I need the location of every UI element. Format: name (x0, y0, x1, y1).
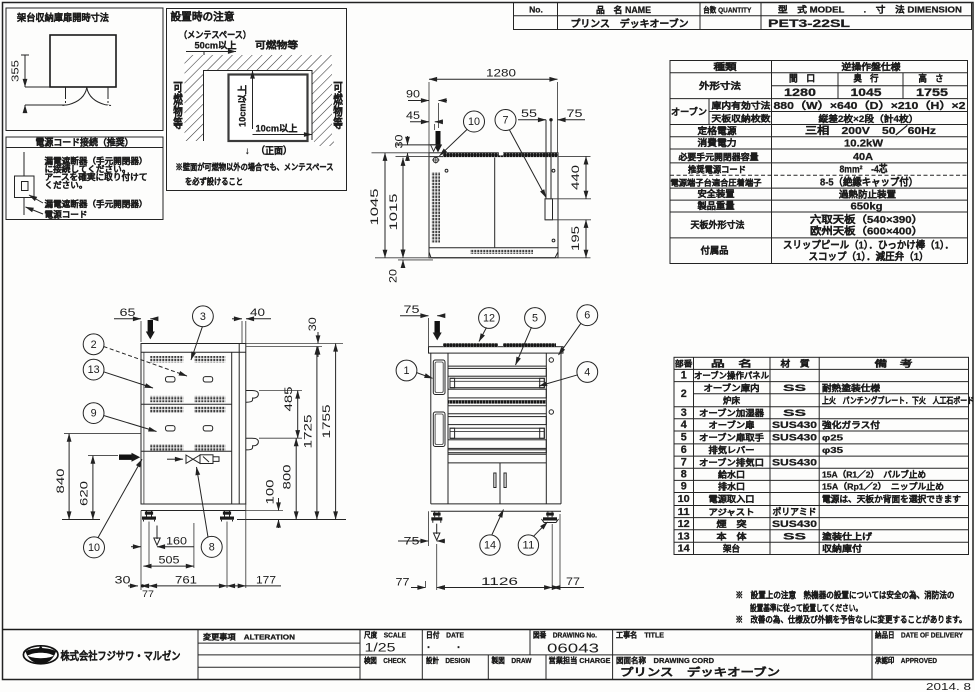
svg-text:77: 77 (566, 576, 580, 588)
svg-text:1280: 1280 (784, 87, 816, 99)
svg-text:8-5（絶縁キャップ付）: 8-5（絶縁キャップ付） (820, 175, 918, 188)
svg-text:75: 75 (567, 108, 583, 120)
svg-text:55: 55 (521, 108, 537, 120)
svg-text:三相 200V 50／60Hz: 三相 200V 50／60Hz (805, 124, 936, 137)
svg-text:2014. 8: 2014. 8 (926, 682, 972, 692)
svg-text:ください。: ください。 (45, 180, 88, 190)
svg-text:2: 2 (91, 339, 97, 351)
svg-text:15A（Rp1／2） ニップル止め: 15A（Rp1／2） ニップル止め (822, 482, 944, 492)
svg-text:炉床: 炉床 (723, 395, 741, 405)
svg-text:1015: 1015 (388, 194, 400, 231)
svg-text:ポリアミド: ポリアミド (773, 506, 817, 517)
svg-text:本 体: 本 体 (715, 531, 747, 541)
svg-text:9: 9 (681, 481, 687, 493)
svg-text:六取天板（540×390）: 六取天板（540×390） (810, 213, 923, 226)
svg-text:可燃物等: 可燃物等 (171, 81, 184, 130)
svg-text:8mm² -4芯: 8mm² -4芯 (840, 162, 888, 175)
svg-text:8: 8 (209, 541, 215, 553)
svg-text:12: 12 (483, 313, 495, 325)
svg-text:品 名: 品 名 (711, 358, 752, 369)
svg-text:納品日 DATE OF DELIVERY: 納品日 DATE OF DELIVERY (875, 631, 963, 640)
svg-text:840: 840 (55, 469, 67, 494)
svg-text:650kg: 650kg (851, 201, 883, 212)
svg-text:4: 4 (584, 367, 590, 379)
svg-text:プリンス デッキオーブン: プリンス デッキオーブン (620, 666, 780, 679)
svg-text:13: 13 (678, 531, 690, 542)
svg-text:10cm以上: 10cm以上 (256, 123, 298, 134)
svg-text:オーブン操作パネル: オーブン操作パネル (694, 371, 770, 381)
svg-text:75: 75 (404, 304, 420, 316)
svg-text:電源端子台適合圧着端子: 電源端子台適合圧着端子 (671, 177, 762, 187)
svg-text:架台収納庫扉開時寸法: 架台収納庫扉開時寸法 (16, 12, 109, 24)
svg-text:高 さ: 高 さ (919, 73, 944, 84)
svg-text:50cm以上: 50cm以上 (195, 40, 237, 51)
svg-text:5: 5 (681, 432, 687, 444)
svg-text:·: · (457, 642, 461, 654)
svg-text:オーブン扉取手: オーブン扉取手 (699, 433, 765, 443)
svg-text:外形寸法: 外形寸法 (698, 80, 741, 91)
svg-text:7: 7 (681, 456, 687, 468)
svg-text:8: 8 (681, 469, 687, 481)
svg-text:1: 1 (403, 365, 409, 377)
svg-text:505: 505 (159, 555, 180, 567)
svg-text:図番 DRAWING No.: 図番 DRAWING No. (533, 631, 597, 640)
svg-text:電源は、天板か背面を選択できます: 電源は、天板か背面を選択できます (822, 494, 961, 504)
svg-text:推奨電源コード: 推奨電源コード (688, 163, 746, 174)
svg-text:14: 14 (678, 544, 690, 555)
svg-text:·: · (427, 642, 431, 654)
svg-text:30: 30 (394, 135, 406, 149)
svg-text:880（W）×640（D）×210（H）×2: 880（W）×640（D）×210（H）×2 (774, 99, 967, 112)
svg-text:オーブン加湿器: オーブン加湿器 (699, 408, 765, 418)
svg-text:株式会社フジサワ・マルゼン: 株式会社フジサワ・マルゼン (61, 649, 181, 663)
svg-text:種類: 種類 (714, 61, 738, 72)
svg-text:（メンテスペース）: （メンテスペース） (179, 30, 251, 40)
svg-text:電源取入口: 電源取入口 (709, 494, 755, 504)
svg-text:型 式 MODEL . 寸 法 DIMENSION: 型 式 MODEL . 寸 法 DIMENSION (778, 5, 962, 15)
svg-text:100: 100 (264, 480, 276, 505)
svg-text:可燃物等: 可燃物等 (331, 81, 344, 130)
svg-text:355: 355 (11, 59, 22, 82)
svg-text:オーブン: オーブン (671, 106, 707, 117)
svg-text:1755: 1755 (321, 405, 333, 439)
svg-text:備 考: 備 考 (875, 358, 914, 369)
svg-text:10: 10 (88, 542, 100, 554)
svg-text:尺度 SCALE: 尺度 SCALE (364, 631, 406, 640)
svg-text:アジャスト: アジャスト (709, 507, 755, 517)
svg-text:1126: 1126 (481, 576, 518, 588)
svg-text:可燃物等: 可燃物等 (255, 40, 299, 52)
svg-text:13: 13 (88, 364, 100, 376)
svg-text:設置時の注意: 設置時の注意 (171, 10, 236, 23)
svg-text:変更事項 ALTERATION: 変更事項 ALTERATION (203, 633, 295, 642)
svg-text:製品重量: 製品重量 (696, 200, 734, 211)
svg-text:スコップ（1）．減圧弁（1）: スコップ（1）．減圧弁（1） (809, 250, 929, 263)
svg-text:電源コード接続（推奨）: 電源コード接続（推奨） (36, 137, 134, 148)
svg-text:10: 10 (678, 494, 690, 505)
svg-text:1725: 1725 (303, 415, 315, 449)
svg-text:20: 20 (388, 269, 400, 283)
svg-text:30: 30 (307, 317, 319, 331)
svg-text:庫内有効寸法: 庫内有効寸法 (712, 100, 771, 111)
svg-text:を必ず設けること: を必ず設けること (185, 176, 243, 187)
svg-text:検図 CHECK: 検図 CHECK (364, 656, 407, 665)
svg-text:電源コード: 電源コード (45, 210, 88, 220)
svg-text:3: 3 (681, 407, 687, 419)
svg-text:オーブン扉: オーブン扉 (709, 420, 756, 430)
svg-text:※ 改善の為、仕様及び外観を予告なしに変更することがあります: ※ 改善の為、仕様及び外観を予告なしに変更することがあります。 (736, 614, 967, 625)
svg-text:品 名 NAME: 品 名 NAME (596, 4, 651, 15)
svg-text:スリップピール（1）．ひっかけ棒（1）．: スリップピール（1）．ひっかけ棒（1）． (783, 239, 954, 252)
svg-text:日付 DATE: 日付 DATE (426, 631, 464, 640)
svg-text:営業担当 CHARGE: 営業担当 CHARGE (549, 656, 611, 665)
svg-text:160: 160 (166, 536, 187, 548)
svg-text:11: 11 (678, 507, 690, 518)
svg-text:1/25: 1/25 (365, 643, 396, 655)
svg-text:65: 65 (120, 307, 136, 319)
svg-text:15A（R1／2） バルブ止め: 15A（R1／2） バルブ止め (822, 470, 926, 480)
svg-text:↓: ↓ (245, 146, 250, 157)
svg-text:縦差2枚×2段（計4枚）: 縦差2枚×2段（計4枚） (819, 113, 919, 124)
svg-text:工事名 TITLE: 工事名 TITLE (616, 631, 664, 640)
svg-text:PET3-22SL: PET3-22SL (768, 18, 850, 30)
svg-text:2: 2 (681, 388, 687, 400)
svg-text:SUS430: SUS430 (772, 457, 817, 467)
svg-text:440: 440 (570, 165, 582, 190)
svg-text:SS: SS (783, 531, 806, 541)
svg-text:漏電遮断器（手元開閉器）: 漏電遮断器（手元開閉器） (45, 199, 148, 209)
svg-text:給水口: 給水口 (718, 470, 745, 480)
svg-text:6: 6 (584, 310, 590, 322)
svg-text:485: 485 (283, 387, 295, 412)
svg-text:4: 4 (681, 419, 687, 431)
svg-text:部番: 部番 (675, 359, 693, 369)
svg-text:5: 5 (532, 313, 538, 325)
svg-text:SUS430: SUS430 (772, 420, 817, 430)
svg-text:No.: No. (529, 5, 543, 15)
svg-text:SUS430: SUS430 (772, 433, 817, 443)
svg-text:煙 突: 煙 突 (717, 519, 748, 529)
svg-text:※ 設置上の注意 熱機器の設置については安全の為、消防法の: ※ 設置上の注意 熱機器の設置については安全の為、消防法の (736, 589, 955, 600)
svg-text:30: 30 (115, 575, 131, 587)
svg-text:耐熱塗装仕様: 耐熱塗装仕様 (822, 383, 881, 393)
svg-text:架台: 架台 (722, 544, 740, 554)
svg-text:90: 90 (406, 89, 420, 101)
svg-text:761: 761 (175, 575, 197, 587)
svg-text:3: 3 (200, 311, 206, 323)
svg-text:消費電力: 消費電力 (698, 137, 737, 148)
svg-text:製図 DRAW: 製図 DRAW (491, 656, 532, 665)
svg-text:奥 行: 奥 行 (853, 73, 879, 84)
svg-text:1: 1 (681, 370, 687, 382)
svg-text:6: 6 (681, 444, 687, 456)
svg-text:77: 77 (396, 577, 410, 589)
svg-text:SUS430: SUS430 (772, 519, 817, 529)
svg-text:必要手元開閉器容量: 必要手元開閉器容量 (677, 151, 758, 162)
svg-text:定格電源: 定格電源 (696, 125, 736, 136)
svg-text:10: 10 (468, 116, 480, 128)
svg-text:177: 177 (256, 575, 276, 587)
svg-text:195: 195 (570, 226, 582, 251)
svg-text:オーブン庫内: オーブン庫内 (704, 383, 760, 393)
svg-text:φ35: φ35 (822, 445, 843, 455)
svg-text:1045: 1045 (851, 87, 882, 99)
svg-text:塗装仕上げ: 塗装仕上げ (822, 531, 873, 541)
svg-text:（正面）: （正面） (256, 145, 292, 157)
svg-text:プリンス デッキオーブン: プリンス デッキオーブン (571, 17, 689, 30)
svg-text:収納庫付: 収納庫付 (822, 544, 863, 554)
svg-text:排水口: 排水口 (718, 482, 745, 492)
svg-text:1045: 1045 (369, 189, 381, 226)
svg-text:承認印 APPROVED: 承認印 APPROVED (875, 656, 937, 665)
svg-text:安全装置: 安全装置 (698, 188, 735, 199)
svg-text:天板外形寸法: 天板外形寸法 (691, 219, 745, 230)
svg-text:過熱防止装置: 過熱防止装置 (838, 188, 896, 199)
svg-text:排気レバー: 排気レバー (709, 445, 755, 455)
svg-text:欧州天板（600×400）: 欧州天板（600×400） (810, 225, 923, 238)
svg-text:強化ガラス付: 強化ガラス付 (822, 420, 881, 430)
svg-text:材 質: 材 質 (781, 358, 810, 369)
svg-text:9: 9 (91, 408, 97, 420)
svg-text:間 口: 間 口 (789, 74, 815, 84)
svg-text:10cm以上: 10cm以上 (237, 85, 248, 127)
svg-text:40: 40 (250, 307, 265, 319)
svg-text:10.2kW: 10.2kW (844, 138, 884, 149)
svg-text:付属品: 付属品 (701, 245, 729, 256)
svg-text:800: 800 (282, 465, 294, 490)
svg-text:620: 620 (79, 481, 91, 506)
svg-text:SS: SS (783, 408, 806, 418)
svg-text:台数 QUANTITY: 台数 QUANTITY (703, 5, 751, 14)
svg-text:1755: 1755 (916, 87, 948, 99)
svg-text:12: 12 (678, 519, 690, 530)
svg-text:逆操作盤仕様: 逆操作盤仕様 (842, 61, 902, 72)
svg-text:天板収納枚数: 天板収納枚数 (712, 113, 771, 124)
svg-text:φ25: φ25 (822, 433, 843, 443)
svg-text:※壁面が可燃物以外の場合でも、メンテスペース: ※壁面が可燃物以外の場合でも、メンテスペース (176, 161, 334, 172)
svg-text:06043: 06043 (547, 642, 599, 656)
svg-text:設計 DESIGN: 設計 DESIGN (426, 656, 470, 665)
svg-text:設置基準に従って設置してください。: 設置基準に従って設置してください。 (750, 602, 862, 613)
svg-text:オーブン排気口: オーブン排気口 (699, 457, 764, 467)
svg-text:7: 7 (502, 115, 508, 127)
svg-text:11: 11 (522, 540, 534, 552)
svg-text:77: 77 (142, 589, 154, 600)
svg-text:図面名称 DRAWING CORD: 図面名称 DRAWING CORD (616, 656, 714, 665)
svg-text:14: 14 (484, 540, 496, 552)
svg-text:40A: 40A (853, 152, 873, 163)
svg-text:45: 45 (406, 110, 420, 122)
svg-text:SS: SS (783, 383, 806, 393)
svg-text:上火 パンチングプレート．下火 人工石ボード: 上火 パンチングプレート．下火 人工石ボード (822, 395, 974, 405)
svg-text:1280: 1280 (486, 68, 516, 80)
